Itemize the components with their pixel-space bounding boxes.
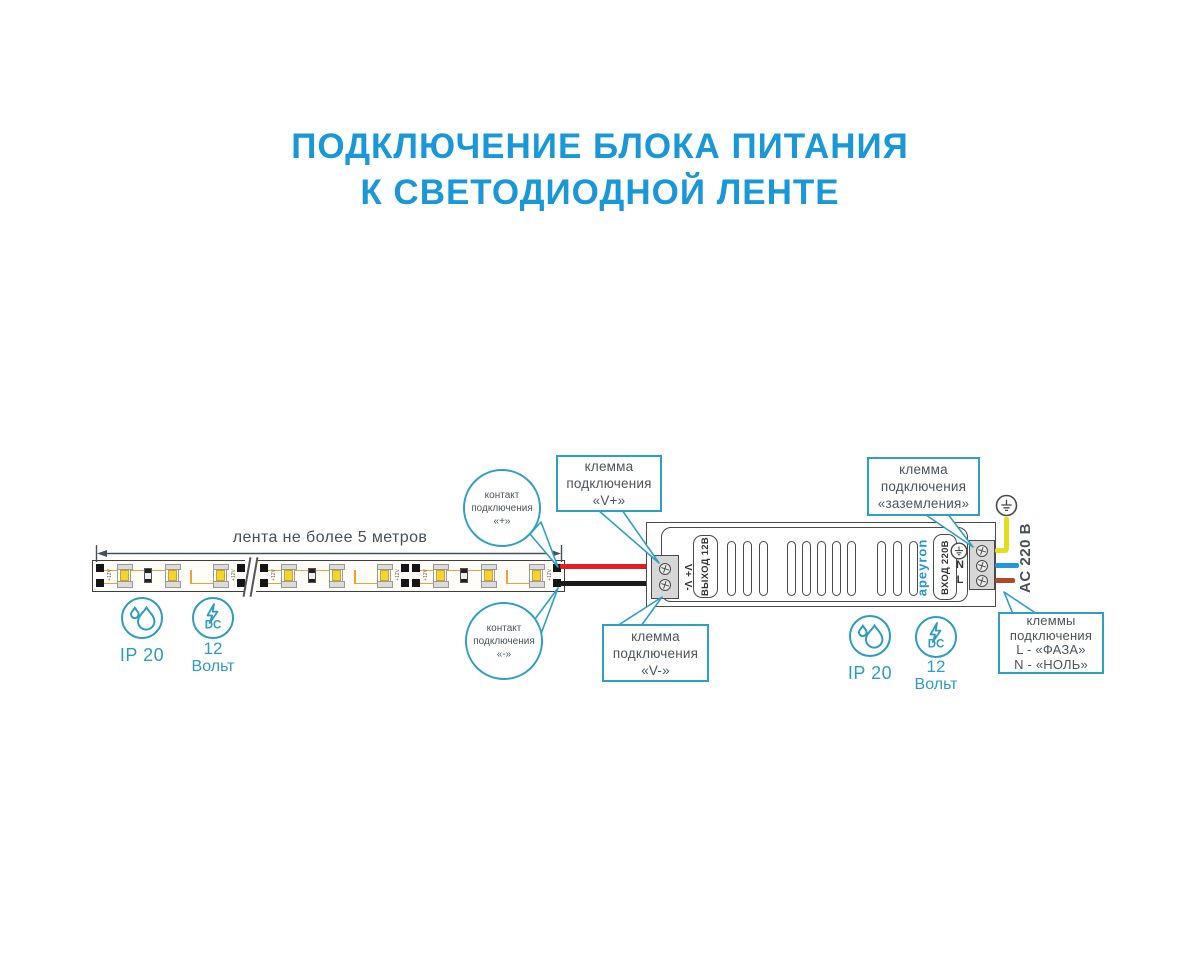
copper-trace	[420, 583, 434, 585]
led-module	[377, 564, 391, 588]
neutral-wire	[995, 563, 1019, 568]
strip-length-label: лента не более 5 метров	[180, 529, 480, 547]
copper-trace	[104, 570, 166, 572]
led-module	[529, 564, 543, 588]
line-wire	[995, 578, 1015, 583]
wiring-diagram: ПОДКЛЮЧЕНИЕ БЛОКА ПИТАНИЯ К СВЕТОДИОДНОЙ…	[0, 0, 1200, 960]
psu-input-label: ВХОД 220В	[940, 540, 951, 595]
led-module	[329, 564, 343, 588]
pad-marking: +12V	[231, 569, 237, 581]
resistor	[460, 568, 468, 583]
led-chip	[436, 570, 445, 581]
terminal-screw	[659, 579, 671, 591]
callout-contact-minus: контакт подключения «-»	[465, 602, 543, 680]
led-chip	[216, 570, 225, 581]
solder-pad	[237, 564, 245, 572]
copper-trace	[268, 583, 282, 585]
resistor	[308, 568, 316, 583]
dc-voltage-icon: DC	[191, 596, 235, 640]
led-module	[117, 564, 131, 588]
dc-voltage-icon: DC	[914, 615, 958, 659]
solder-pad	[412, 564, 420, 572]
led-module	[433, 564, 447, 588]
terminal-screw	[976, 545, 988, 557]
water-drop-icon	[848, 614, 892, 658]
terminal-screw	[659, 563, 671, 575]
page-title-line2: К СВЕТОДИОДНОЙ ЛЕНТЕ	[0, 170, 1200, 216]
callout-terminal-ln: клеммы подключения L - «ФАЗА» N - «НОЛЬ»	[998, 612, 1104, 674]
solder-pad	[96, 564, 104, 572]
led-chip	[532, 570, 541, 581]
vent-slot	[847, 541, 856, 596]
ground-wire	[1004, 517, 1009, 551]
ip-rating-label: IP 20	[110, 645, 174, 666]
earth-ground-icon	[995, 494, 1018, 517]
led-strip-segment: +12V +12V	[259, 561, 411, 590]
led-module	[213, 564, 227, 588]
led-chip	[168, 570, 177, 581]
led-module	[281, 564, 295, 588]
led-chip	[484, 570, 493, 581]
page-title-line1: ПОДКЛЮЧЕНИЕ БЛОКА ПИТАНИЯ	[0, 124, 1200, 170]
vent-slot	[727, 541, 736, 596]
psu-output-label: ВЫХОД 12В	[700, 537, 711, 596]
terminal-screw	[976, 560, 988, 572]
led-strip-segment: +12V +12V	[411, 561, 563, 590]
voltage-value-label: 12	[911, 657, 961, 677]
water-drop-icon	[120, 596, 164, 640]
solder-pad	[412, 579, 420, 587]
vent-slot	[743, 541, 752, 596]
copper-trace	[420, 570, 482, 572]
page-title: ПОДКЛЮЧЕНИЕ БЛОКА ПИТАНИЯ К СВЕТОДИОДНОЙ…	[0, 124, 1200, 216]
callout-terminal-vplus: клемма подключения «V+»	[556, 455, 662, 512]
vent-slot	[832, 541, 841, 596]
led-strip: +12V +12V +12V +12V	[92, 560, 565, 592]
callout-contact-plus: контакт подключения «+»	[463, 469, 541, 547]
copper-trace	[104, 583, 118, 585]
led-module	[165, 564, 179, 588]
psu-ground-symbol	[950, 542, 968, 560]
voltage-unit-label: Вольт	[904, 676, 968, 694]
callout-terminal-vminus: клемма подключения «V-»	[602, 624, 709, 682]
vent-slot	[787, 541, 796, 596]
vent-slot	[893, 541, 902, 596]
copper-trace	[268, 570, 330, 572]
vent-slot	[759, 541, 768, 596]
voltage-unit-label: Вольт	[181, 658, 245, 676]
pad-marking: +12V	[107, 569, 113, 581]
dc-wire-negative	[560, 581, 655, 587]
solder-pad	[401, 579, 409, 587]
solder-pad	[401, 564, 409, 572]
solder-pad	[260, 579, 268, 587]
solder-pad	[260, 564, 268, 572]
led-chip	[284, 570, 293, 581]
pad-marking: +12V	[271, 569, 277, 581]
vent-slot	[802, 541, 811, 596]
vent-slot	[817, 541, 826, 596]
voltage-value-label: 12	[188, 639, 238, 659]
led-module	[481, 564, 495, 588]
led-chip	[332, 570, 341, 581]
ac-voltage-label: AC 220 В	[1017, 516, 1037, 600]
terminal-screw	[976, 575, 988, 587]
psu-neutral-label: N	[953, 559, 967, 571]
dc-wire-positive	[560, 564, 655, 570]
vent-slot	[877, 541, 886, 596]
led-strip-segment: +12V +12V	[95, 561, 247, 590]
led-chip	[120, 570, 129, 581]
dc-icon-text: DC	[928, 639, 945, 651]
psu-output-label-box: ВЫХОД 12В	[693, 535, 718, 598]
ip-rating-label: IP 20	[838, 663, 902, 684]
psu-line-label: L	[953, 574, 967, 586]
solder-pad	[96, 579, 104, 587]
led-chip	[380, 570, 389, 581]
pad-marking: +12V	[395, 569, 401, 581]
resistor	[144, 568, 152, 583]
pad-marking: +12V	[547, 569, 553, 581]
callout-terminal-ground: клемма подключения «заземления»	[867, 457, 980, 516]
dc-icon-text: DC	[205, 620, 222, 632]
pad-marking: +12V	[423, 569, 429, 581]
